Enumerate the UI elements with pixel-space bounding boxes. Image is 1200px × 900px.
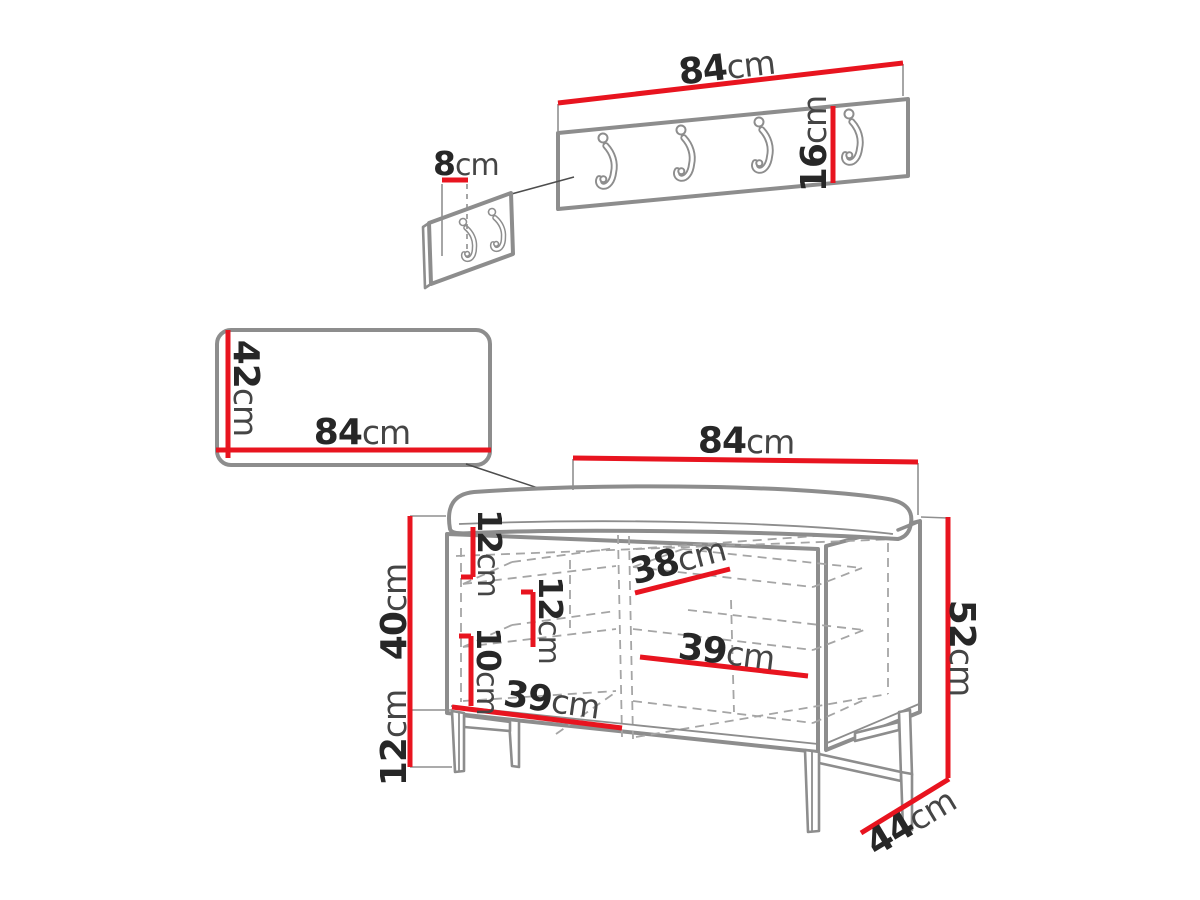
- dim-label-rack-height: 16cm: [794, 96, 835, 192]
- dim-label-rack-width: 84cm: [676, 42, 776, 94]
- dim-label-leg-height: 12cm: [374, 690, 415, 786]
- dim-label-bench-height: 52cm: [941, 600, 982, 696]
- hook-detail-drawing: 8cm: [423, 144, 513, 288]
- dim-label-mid-gap: 12cm: [531, 576, 570, 664]
- dim-label-top-gap: 12cm: [470, 509, 509, 597]
- furniture-dimension-diagram: 84cm 16cm 8cm 42cm 84cm: [0, 0, 1200, 900]
- coat-rack-drawing: 84cm 16cm: [504, 42, 908, 209]
- bench-cushion: [449, 486, 911, 539]
- dim-label-mirror-width: 84cm: [314, 412, 410, 453]
- dim-label-bench-width: 84cm: [698, 420, 795, 462]
- bench-drawing: 84cm 52cm 44cm 40cm 12cm 12cm 12cm 10cm …: [374, 420, 982, 864]
- diagram-canvas: 84cm 16cm 8cm 42cm 84cm: [0, 0, 1200, 900]
- dim-label-hook-spacing: 8cm: [433, 144, 499, 183]
- dim-label-body-height: 40cm: [374, 564, 415, 660]
- dim-label-mirror-height: 42cm: [225, 340, 266, 436]
- mirror-drawing: 42cm 84cm: [216, 330, 577, 501]
